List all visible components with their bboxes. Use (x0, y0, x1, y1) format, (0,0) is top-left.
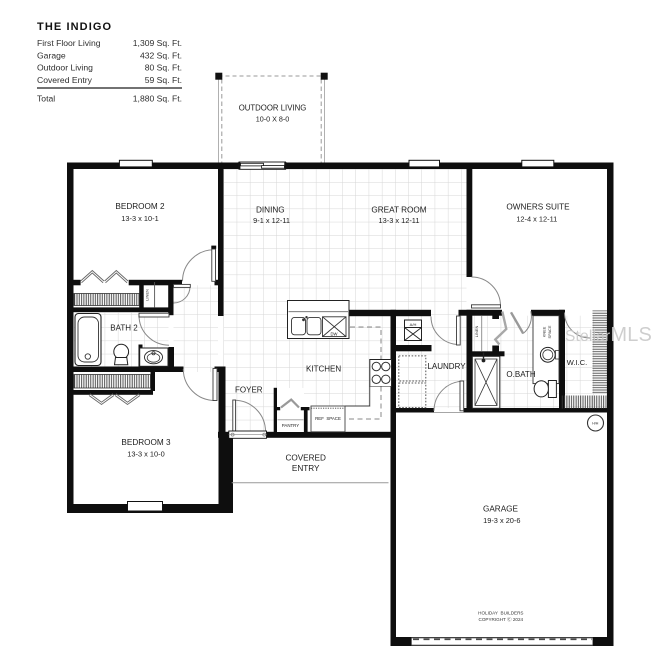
svg-text:GARAGE: GARAGE (483, 505, 519, 514)
svg-text:Outdoor Living: Outdoor Living (37, 63, 93, 73)
svg-text:COPYRIGHT Ⓒ 2024: COPYRIGHT Ⓒ 2024 (479, 616, 524, 623)
svg-text:HOLIDAY BUILDERS: HOLIDAY BUILDERS (478, 611, 523, 616)
svg-text:First Floor Living: First Floor Living (37, 38, 101, 48)
svg-text:DW: DW (331, 331, 338, 336)
svg-text:FOYER: FOYER (235, 386, 263, 395)
svg-text:OUTDOOR LIVING: OUTDOOR LIVING (239, 104, 307, 113)
svg-text:O.BATH: O.BATH (506, 370, 535, 379)
svg-text:BEDROOM 3: BEDROOM 3 (121, 438, 171, 447)
svg-text:13-3 x 12-11: 13-3 x 12-11 (379, 216, 420, 225)
svg-text:THE INDIGO: THE INDIGO (37, 21, 112, 33)
svg-text:PANTRY: PANTRY (282, 423, 299, 428)
svg-text:BEDROOM 2: BEDROOM 2 (115, 202, 165, 211)
svg-text:W.I.C.: W.I.C. (567, 358, 587, 367)
svg-text:12-4 x 12-11: 12-4 x 12-11 (516, 215, 557, 224)
svg-text:DINING: DINING (256, 206, 285, 215)
svg-text:Total: Total (37, 94, 55, 104)
svg-text:OWNERS SUITE: OWNERS SUITE (506, 203, 570, 212)
svg-text:1,880 Sq. Ft.: 1,880 Sq. Ft. (133, 94, 182, 104)
svg-text:KNEE: KNEE (542, 326, 547, 337)
svg-text:1,309 Sq. Ft.: 1,309 Sq. Ft. (133, 38, 182, 48)
svg-text:432 Sq. Ft.: 432 Sq. Ft. (140, 50, 182, 60)
svg-text:SPACE: SPACE (547, 325, 552, 338)
svg-text:H/H: H/H (592, 422, 599, 426)
svg-text:59 Sq. Ft.: 59 Sq. Ft. (145, 75, 182, 85)
svg-text:10-0 X 8-0: 10-0 X 8-0 (256, 115, 290, 124)
svg-text:9-1 x 12-11: 9-1 x 12-11 (253, 216, 290, 225)
svg-text:LINEN: LINEN (474, 325, 479, 337)
svg-text:REF SPACE: REF SPACE (315, 416, 341, 421)
svg-text:ENTRY: ENTRY (292, 464, 320, 473)
svg-text:GREAT ROOM: GREAT ROOM (371, 206, 426, 215)
svg-text:KITCHEN: KITCHEN (306, 365, 341, 374)
svg-text:13-3 x 10-1: 13-3 x 10-1 (121, 214, 158, 223)
svg-text:19-3 x 20-6: 19-3 x 20-6 (483, 516, 520, 525)
svg-text:A/H: A/H (410, 322, 417, 327)
svg-text:BATH 2: BATH 2 (110, 324, 138, 333)
svg-text:LINEN: LINEN (145, 289, 150, 301)
svg-text:COVERED: COVERED (285, 454, 326, 463)
svg-text:Garage: Garage (37, 50, 66, 60)
svg-text:13-3 x 10-0: 13-3 x 10-0 (127, 450, 164, 459)
svg-text:80 Sq. Ft.: 80 Sq. Ft. (145, 63, 182, 73)
svg-text:StellarMLS: StellarMLS (565, 324, 652, 346)
svg-text:LAUNDRY: LAUNDRY (427, 362, 466, 371)
svg-text:Covered Entry: Covered Entry (37, 75, 93, 85)
